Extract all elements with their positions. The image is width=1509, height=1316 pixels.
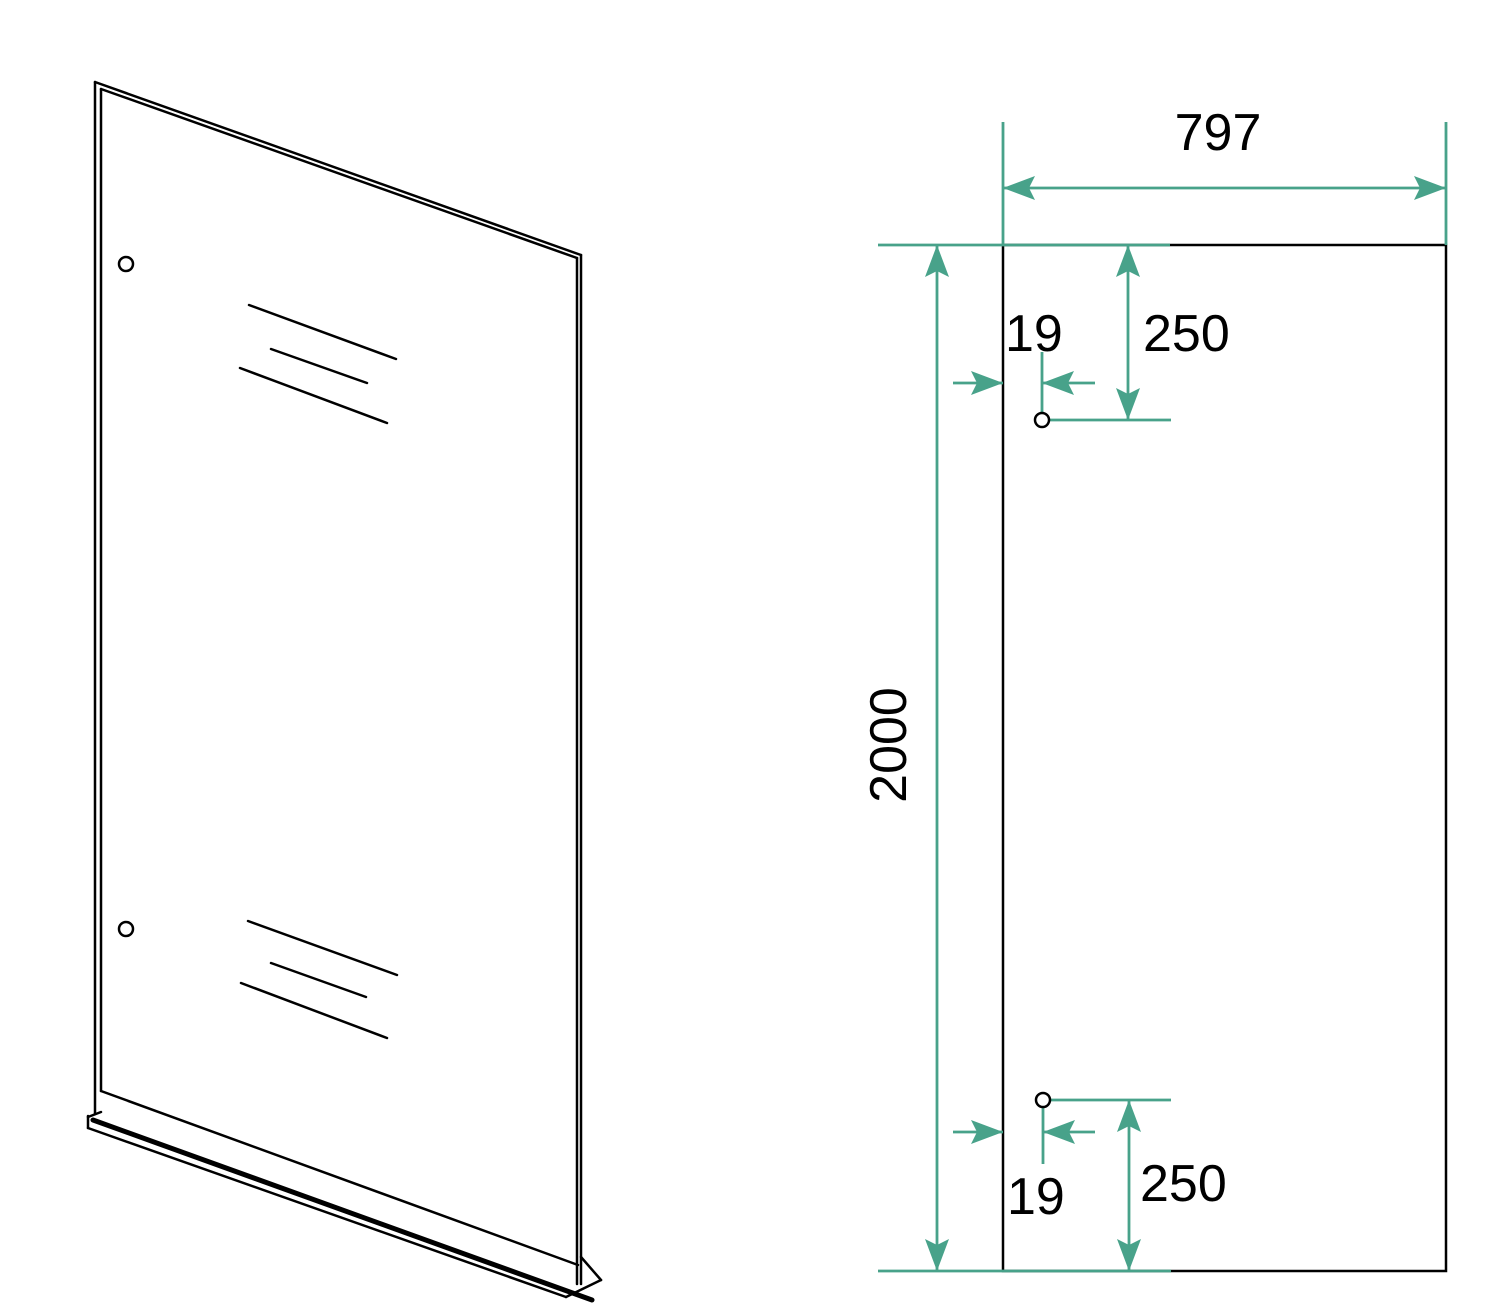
height-label: 2000 bbox=[860, 687, 918, 803]
front-view bbox=[1003, 245, 1446, 1271]
iso-reflection-upper-3 bbox=[240, 368, 387, 423]
iso-channel-right-end-top bbox=[581, 1257, 601, 1280]
technical-drawing-canvas: 797 2000 250 19 250 bbox=[0, 0, 1509, 1316]
width-label: 797 bbox=[1175, 104, 1262, 162]
iso-top-edge-outer bbox=[95, 82, 581, 255]
iso-glass-bottom-edge bbox=[101, 1091, 578, 1265]
dimension-bottom-hole-horizontal: 19 bbox=[953, 1107, 1095, 1226]
iso-channel-top-edge bbox=[93, 1120, 592, 1300]
bottom-hole-vert-label: 250 bbox=[1140, 1155, 1227, 1213]
iso-reflection-upper-2 bbox=[271, 349, 367, 383]
drawing-svg: 797 2000 250 19 250 bbox=[0, 0, 1509, 1316]
iso-channel-bottom-edge bbox=[88, 1128, 566, 1297]
iso-reflection-lower-3 bbox=[241, 983, 387, 1038]
top-hole-vert-label: 250 bbox=[1143, 305, 1230, 363]
front-view-outline bbox=[1003, 245, 1446, 1271]
iso-top-edge-inner bbox=[101, 89, 577, 258]
iso-reflection-upper-1 bbox=[249, 305, 396, 359]
dimension-top-hole-horizontal: 19 bbox=[953, 305, 1095, 414]
dimension-bottom-hole-vertical: 250 bbox=[1050, 1100, 1227, 1271]
dimension-top-hole-vertical: 250 bbox=[1050, 245, 1230, 420]
iso-bottom-hole bbox=[119, 922, 133, 936]
bottom-hole-horiz-label: 19 bbox=[1007, 1168, 1065, 1226]
iso-reflection-lower-2 bbox=[271, 963, 366, 997]
top-hole-horiz-label: 19 bbox=[1005, 305, 1063, 363]
iso-reflection-lower-1 bbox=[248, 921, 397, 975]
front-bottom-hole bbox=[1036, 1093, 1050, 1107]
iso-top-hole bbox=[119, 257, 133, 271]
dimension-width: 797 bbox=[1003, 104, 1446, 245]
front-top-hole bbox=[1035, 413, 1049, 427]
isometric-view bbox=[88, 82, 601, 1300]
front-view-holes bbox=[1035, 413, 1050, 1107]
